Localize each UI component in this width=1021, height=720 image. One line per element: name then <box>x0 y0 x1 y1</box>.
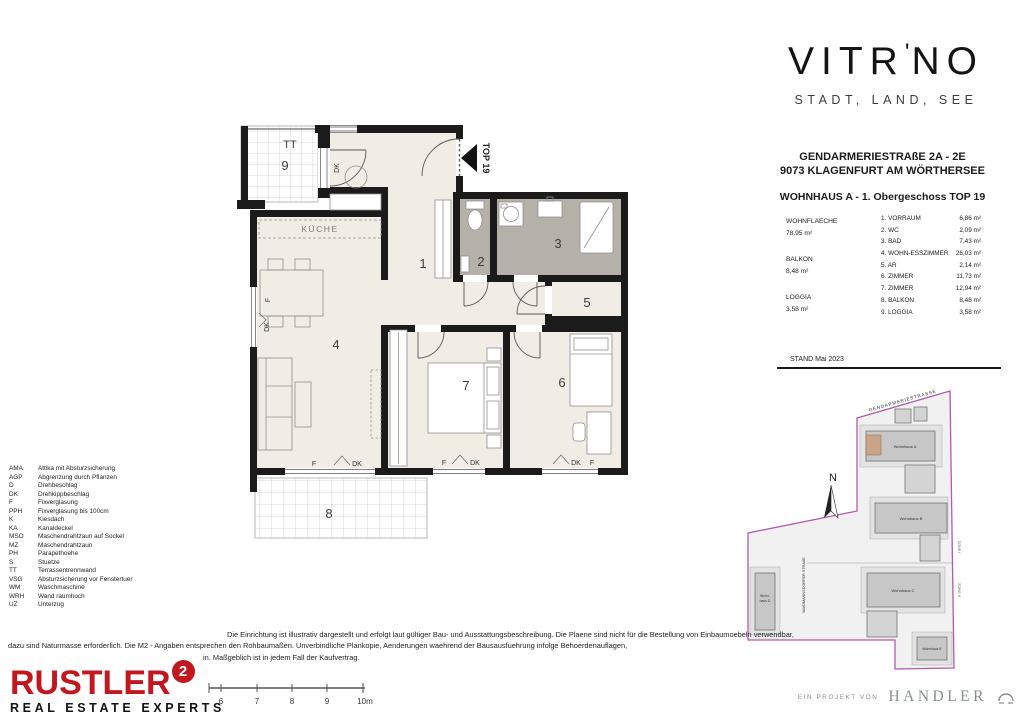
scale-tick: 8 <box>290 697 295 706</box>
legend-row: DKDrehkippbeschlag <box>9 491 132 500</box>
handler-logo: EIN PROJEKT VON HANDLER <box>770 688 1015 706</box>
room-area: 2,14 m² <box>959 262 981 269</box>
legend-abbr: K <box>9 516 38 525</box>
entry-closet <box>330 194 381 210</box>
scale-tick: 7 <box>255 697 260 706</box>
loggia-door-window <box>318 148 330 188</box>
shower <box>580 202 613 253</box>
north-arrow: N <box>824 472 838 518</box>
room-name: 3. BAD <box>881 238 901 245</box>
logo-post: NO <box>911 40 984 83</box>
summary-label: WOHNFLAECHE <box>786 218 871 226</box>
room-list: 1. VORRAUM6,86 m² 2. WC2,09 m² 3. BAD7,4… <box>881 215 981 320</box>
handler-arch-icon <box>997 690 1015 704</box>
legend-abbr: TT <box>9 567 38 576</box>
legend-desc: Fixverglasung bis 100cm <box>38 508 109 517</box>
legend-desc: Fixverglasung <box>38 499 78 508</box>
room-row: 3. BAD7,43 m² <box>881 238 981 250</box>
address-line2: 9073 KLAGENFURT AM WÖRTHERSEE <box>755 164 1010 178</box>
room-area: 3,58 m² <box>959 309 981 316</box>
room-area: 6,86 m² <box>959 215 981 222</box>
legend-row: MSOMaschendrahtzaun auf Sockel <box>9 533 132 542</box>
door-gap-room7 <box>415 325 441 332</box>
room-area: 8,48 m² <box>959 297 981 304</box>
door-gap-bad <box>514 275 538 282</box>
scale-tick-labels: 6 7 8 9 10m <box>219 697 373 706</box>
legend-desc: Maschendrahtzaun auf Sockel <box>38 533 124 542</box>
label-room4: 4 <box>332 337 339 352</box>
legend-desc: Attika mit Absturzsicherung <box>38 465 115 474</box>
site-plan: GENDARMERIESTRASSE WAIDMANNSDORFER STRAß… <box>745 385 1015 685</box>
logo-mark: ' <box>905 39 912 67</box>
summary-value: 8,48 m² <box>786 268 871 276</box>
legend-row: PPHFixverglasung bis 100cm <box>9 508 132 517</box>
label-room3: 3 <box>554 236 561 251</box>
win-dk: DK <box>571 460 581 467</box>
legend-abbr: KA <box>9 525 38 534</box>
plan-date: STAND Mai 2023 <box>790 356 844 363</box>
legend-desc: Maschendrahtzaun <box>38 542 92 551</box>
rustler-name: RUSTLER <box>10 664 171 702</box>
win-f: F <box>442 460 446 467</box>
legend-row: VSGAbsturzsicherung vor Fenstertuer <box>9 576 132 585</box>
site-street-left: WAIDMANNSDORFER STRAßE <box>802 557 806 613</box>
legend-desc: Kiesdach <box>38 516 64 525</box>
legend-desc: Wand raumhoch <box>38 593 85 602</box>
room-area: 11,73 m² <box>956 273 981 280</box>
room-row: 2. WC2,09 m² <box>881 227 981 239</box>
legend-row: WRHWand raumhoch <box>9 593 132 602</box>
disclaimer-line3: in. Maßgeblich ist in jedem Fall der Kau… <box>203 653 360 662</box>
scale-bar: 6 7 8 9 10m <box>205 676 380 711</box>
room-row: 9. LOGGIA3,58 m² <box>881 309 981 321</box>
label-room7: 7 <box>462 378 469 393</box>
legend-desc: Parapethoehe <box>38 550 78 559</box>
legend-desc: Drehbeschlag <box>38 482 77 491</box>
hall-wardrobe <box>435 200 451 278</box>
door-gap-ar <box>545 286 552 314</box>
legend-row: MZMaschendrahtzaun <box>9 542 132 551</box>
legend-desc: Stuetze <box>38 559 60 568</box>
window-room7 <box>433 468 485 475</box>
window-room6 <box>542 468 598 475</box>
site-house-a: Wohnhaus A <box>894 444 917 449</box>
legend-desc: Absturzsicherung vor Fenstertuer <box>38 576 132 585</box>
legend-abbr: PH <box>9 550 38 559</box>
wardrobe-room7 <box>390 330 407 466</box>
address-block: GENDARMERIESTRAßE 2A - 2E 9073 KLAGENFUR… <box>755 150 1010 178</box>
legend-abbr: UZ <box>9 601 38 610</box>
legend-desc: Kanaldeckel <box>38 525 73 534</box>
room-area: 12,94 m² <box>956 285 981 292</box>
label-room5: 5 <box>583 295 590 310</box>
win-f: F <box>312 461 316 468</box>
site-house-d1: Wohn- <box>760 594 770 598</box>
legend-row: DDrehbeschlag <box>9 482 132 491</box>
legend-row: KKiesdach <box>9 516 132 525</box>
summary-item: LOGGIA 3,58 m² <box>786 294 871 314</box>
label-room2: 2 <box>477 254 484 269</box>
room-name: 4. WOHN-ESSZIMMER <box>881 250 948 257</box>
room-area: 2,09 m² <box>959 227 981 234</box>
entrance-marker: TOP 19 <box>461 143 491 174</box>
legend-row: KAKanaldeckel <box>9 525 132 534</box>
handler-prefix: EIN PROJEKT VON <box>798 694 879 701</box>
room-row: 8. BALKON8,48 m² <box>881 297 981 309</box>
room-name: 6. ZIMMER <box>881 273 913 280</box>
legend-abbr: AGP <box>9 474 38 483</box>
legend-row: WMWaschmaschine <box>9 584 132 593</box>
legend-abbr: AMA <box>9 465 38 474</box>
win-f: F <box>265 298 272 302</box>
legend-abbr: MZ <box>9 542 38 551</box>
legend-row: SStuetze <box>9 559 132 568</box>
window-livingroom <box>285 468 375 475</box>
legend-row: UZUnterzug <box>9 601 132 610</box>
win-dk: DK <box>352 461 362 468</box>
summary-label: BALKON <box>786 256 871 264</box>
win-dk: DK <box>334 163 341 173</box>
summary-label: LOGGIA <box>786 294 871 302</box>
legend-desc: Waschmaschine <box>38 584 85 593</box>
handler-name: HANDLER <box>888 688 987 706</box>
legend-abbr: F <box>9 499 38 508</box>
summary-item: WOHNFLAECHE 78,95 m² <box>786 218 871 238</box>
legend-desc: Terrassentrennwand <box>38 567 96 576</box>
legend-desc: Abgrenzung durch Pflanzen <box>38 474 117 483</box>
scale-tick: 10m <box>357 697 373 706</box>
abbreviation-legend: AMAAttika mit Absturzsicherung AGPAbgren… <box>9 465 132 610</box>
room-area: 26,03 m² <box>956 250 981 257</box>
bed-room7 <box>428 348 501 448</box>
legend-row: TTTerrassentrennwand <box>9 567 132 576</box>
room-name: 9. LOGGIA <box>881 309 913 316</box>
label-tt: TT <box>283 139 297 151</box>
loggia <box>241 126 318 202</box>
highlighted-unit <box>866 435 881 455</box>
disclaimer-line2: dazu sind Naturmasse erforderlich. Die M… <box>8 641 627 650</box>
legend-row: AGPAbgrenzung durch Pflanzen <box>9 474 132 483</box>
legend-abbr: VSG <box>9 576 38 585</box>
summary-value: 3,58 m² <box>786 306 871 314</box>
site-zone1: ZONE I <box>957 541 961 554</box>
entrance-label: TOP 19 <box>481 143 491 174</box>
site-house-c: Wohnhaus C <box>891 588 914 593</box>
address-line1: GENDARMERIESTRAßE 2A - 2E <box>755 150 1010 164</box>
win-dk: DK <box>470 460 480 467</box>
legend-abbr: DK <box>9 491 38 500</box>
legend-abbr: WM <box>9 584 38 593</box>
site-house-b: Wohnhaus B <box>900 516 923 521</box>
scale-tick: 9 <box>325 697 330 706</box>
label-room6: 6 <box>558 375 565 390</box>
floor-plan: TOP 19 1 2 3 4 5 6 7 8 9 TT KÜCHE F DK F… <box>235 120 675 540</box>
site-house-e: Wohnhaus E <box>922 647 942 651</box>
vitrino-logo: VITR'NO <box>762 40 1010 84</box>
legend-desc: Drehkippbeschlag <box>38 491 89 500</box>
logo-pre: VITR <box>788 40 905 83</box>
brand-tagline: STADT, LAND, SEE <box>762 93 1010 107</box>
site-zone2: ZONE II <box>957 583 961 597</box>
legend-abbr: S <box>9 559 38 568</box>
unit-title: WOHNHAUS A - 1. Obergeschoss TOP 19 <box>755 191 1010 203</box>
area-summary: WOHNFLAECHE 78,95 m² BALKON 8,48 m² LOGG… <box>786 218 871 332</box>
legend-abbr: PPH <box>9 508 38 517</box>
door-gap-wc <box>463 275 487 282</box>
summary-value: 78,95 m² <box>786 230 871 238</box>
disclaimer-line1: Die Einrichtung ist illustrativ dargeste… <box>0 630 1021 639</box>
win-f: F <box>590 460 594 467</box>
room-name: 2. WC <box>881 227 899 234</box>
rustler-badge: 2 <box>172 660 195 683</box>
label-room9: 9 <box>281 158 288 173</box>
washing-machine <box>499 202 523 226</box>
room-name: 5. AR <box>881 262 897 269</box>
room-name: 7. ZIMMER <box>881 285 913 292</box>
wc-basin <box>461 256 469 272</box>
window-top <box>330 126 357 133</box>
summary-item: BALKON 8,48 m² <box>786 256 871 276</box>
room-row: 7. ZIMMER12,94 m² <box>881 285 981 297</box>
legend-abbr: D <box>9 482 38 491</box>
room-name: 1. VORRAUM <box>881 215 921 222</box>
legend-row: AMAAttika mit Absturzsicherung <box>9 465 132 474</box>
room-row: 6. ZIMMER11,73 m² <box>881 273 981 285</box>
win-dk: DK <box>264 322 271 332</box>
scale-tick: 6 <box>219 697 224 706</box>
rustler-tagline: REAL ESTATE EXPERTS <box>10 701 225 715</box>
room-row: 1. VORRAUM6,86 m² <box>881 215 981 227</box>
floorplan-page: VITR'NO STADT, LAND, SEE GENDARMERIESTRA… <box>0 0 1021 720</box>
label-kueche: KÜCHE <box>301 224 338 234</box>
room-row: 4. WOHN-ESSZIMMER26,03 m² <box>881 250 981 262</box>
legend-abbr: WRH <box>9 593 38 602</box>
label-room1: 1 <box>419 256 426 271</box>
site-house-d2: haus D <box>760 599 771 603</box>
north-label: N <box>829 472 837 484</box>
room-name: 8. BALKON <box>881 297 914 304</box>
bed-room6 <box>570 334 612 406</box>
legend-abbr: MSO <box>9 533 38 542</box>
label-room8: 8 <box>325 506 332 521</box>
balcony <box>255 478 427 538</box>
door-gap-room6 <box>516 325 542 332</box>
legend-desc: Unterzug <box>38 601 64 610</box>
room-area: 7,43 m² <box>959 238 981 245</box>
window-left <box>250 287 257 347</box>
divider-line <box>777 367 1001 369</box>
legend-row: FFixverglasung <box>9 499 132 508</box>
room-row: 5. AR2,14 m² <box>881 262 981 274</box>
rustler-logo: RUSTLER2 REAL ESTATE EXPERTS <box>10 660 225 715</box>
legend-row: PHParapethoehe <box>9 550 132 559</box>
